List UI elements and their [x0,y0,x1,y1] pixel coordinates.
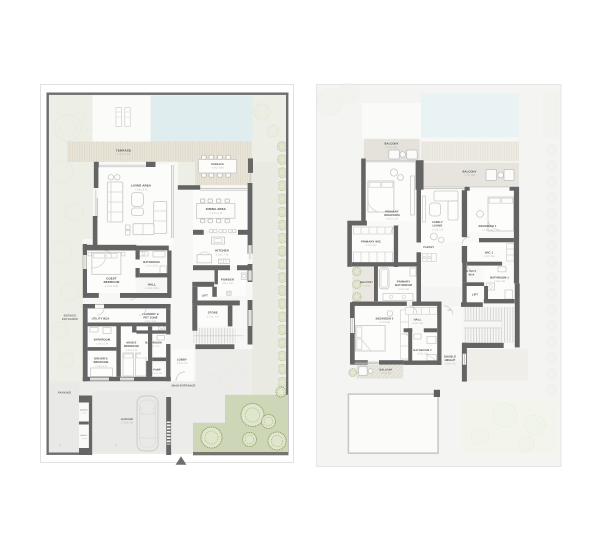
svg-text:2.5X1.5M: 2.5X1.5M [494,280,505,283]
svg-text:BEDROOM 2: BEDROOM 2 [376,317,394,321]
svg-text:1.4X1.2M: 1.4X1.2M [152,372,162,375]
svg-text:BEDROOM: BEDROOM [104,280,120,284]
svg-text:HEIGHT: HEIGHT [445,359,456,362]
svg-text:7.7X1.8M: 7.7X1.8M [464,174,475,177]
svg-text:WIC 1: WIC 1 [485,251,494,255]
svg-text:2.6X2.6 M: 2.6X2.6 M [95,365,107,368]
svg-text:KITCHEN: KITCHEN [215,249,229,253]
svg-text:7.0X3.4 M: 7.0X3.4 M [117,153,130,156]
svg-text:3.0X2.8M: 3.0X2.8M [398,288,409,291]
svg-text:GARAGE: GARAGE [80,409,89,412]
svg-text:DINING AREA: DINING AREA [206,207,227,211]
svg-text:PARKING: PARKING [58,391,71,395]
svg-text:BATHROOM 1: BATHROOM 1 [490,277,509,280]
svg-text:BATHROOM 2: BATHROOM 2 [413,349,432,352]
svg-text:LAUNDRY &: LAUNDRY & [142,313,159,316]
svg-text:2.4X1.95M: 2.4X1.95M [145,287,158,290]
svg-text:7.0X6.8 M: 7.0X6.8 M [135,188,148,191]
svg-text:2.7X1.7 M: 2.7X1.7 M [207,315,219,318]
svg-text:TERRACE: TERRACE [211,163,224,166]
svg-text:LIFT: LIFT [202,294,208,297]
svg-text:2.5X1.5M: 2.5X1.5M [417,353,428,356]
svg-text:HALL: HALL [414,317,422,321]
svg-text:2.6X1.9M: 2.6X1.9M [412,322,423,325]
svg-text:PUMP: PUMP [153,368,161,371]
svg-text:6.0X6.0M: 6.0X6.0M [121,422,133,425]
svg-text:4.9X2.75M: 4.9X2.75M [211,166,223,169]
svg-text:PRIMARY WIC: PRIMARY WIC [361,239,381,243]
svg-text:LOBBY: LOBBY [177,357,187,361]
svg-text:4.0X4.1 M: 4.0X4.1 M [386,218,398,221]
svg-text:BATHROOM: BATHROOM [143,261,160,264]
svg-text:BEDROOM: BEDROOM [384,213,400,217]
svg-text:4.1X1M: 4.1X1M [362,284,370,287]
svg-text:UTILITY BOX: UTILITY BOX [92,317,110,320]
svg-text:4.1X1.2M: 4.1X1.2M [381,372,391,375]
svg-text:BOX: BOX [469,274,475,277]
svg-text:HALL: HALL [148,283,156,287]
svg-text:BATHROOM: BATHROOM [94,339,111,342]
svg-text:4.0X3.65M: 4.0X3.65M [105,285,118,288]
svg-text:4.2X3.3 M: 4.2X3.3 M [209,212,222,215]
svg-text:STORE: STORE [208,311,218,315]
svg-text:BALCONY: BALCONY [360,281,373,284]
svg-text:CW 2.1M: CW 2.1M [222,282,233,285]
svg-text:BATHROOM: BATHROOM [145,341,162,344]
svg-text:3.1X2.6M: 3.1X2.6M [365,244,376,247]
svg-text:BATHROOM: BATHROOM [395,283,413,287]
svg-text:4.1X4.0M: 4.1X4.0M [379,321,390,324]
svg-text:LIFT: LIFT [472,294,478,297]
svg-text:3.7X4.4 M: 3.7X4.4 M [432,228,444,231]
svg-text:1.9X2.7M: 1.9X2.7M [176,362,187,365]
svg-text:DRIVER'S: DRIVER'S [94,358,107,361]
svg-text:5.4X1.8M: 5.4X1.8M [386,146,397,149]
svg-text:ENTRANCE: ENTRANCE [62,317,78,321]
svg-text:DOUBLE: DOUBLE [444,355,456,358]
svg-text:2.9X1.9M: 2.9X1.9M [483,255,494,258]
svg-text:BALCONY: BALCONY [379,368,392,371]
svg-text:LIVING AREA: LIVING AREA [131,184,152,188]
svg-text:BEDROOM: BEDROOM [94,361,109,364]
svg-text:BALCONY: BALCONY [385,142,399,145]
svg-text:MAID'S: MAID'S [127,342,137,345]
svg-text:BEDROOM 1: BEDROOM 1 [479,224,497,228]
svg-text:POWDER: POWDER [221,277,234,281]
svg-text:7.0X2.7M: 7.0X2.7M [444,363,455,366]
svg-text:TERRACE: TERRACE [116,149,131,153]
svg-text:BEDROOM: BEDROOM [124,345,139,348]
svg-text:PET ZONE: PET ZONE [143,317,157,320]
svg-text:2.4X1.55M: 2.4X1.55M [145,265,157,268]
svg-text:4.1X4.0M: 4.1X4.0M [482,229,493,232]
svg-text:4.2X2.7 M: 4.2X2.7 M [216,253,229,256]
svg-text:LIVING: LIVING [433,224,443,228]
svg-text:BALCONY: BALCONY [463,170,477,173]
svg-text:MAIN ENTRANCE: MAIN ENTRANCE [172,385,196,388]
svg-text:PANTRY: PANTRY [423,246,434,249]
svg-text:GARAGE: GARAGE [121,418,134,421]
svg-text:UTILITY: UTILITY [80,434,88,437]
svg-text:2.4X1.5 M: 2.4X1.5 M [96,342,108,345]
svg-text:2.6X2.6 M: 2.6X2.6 M [126,349,138,352]
